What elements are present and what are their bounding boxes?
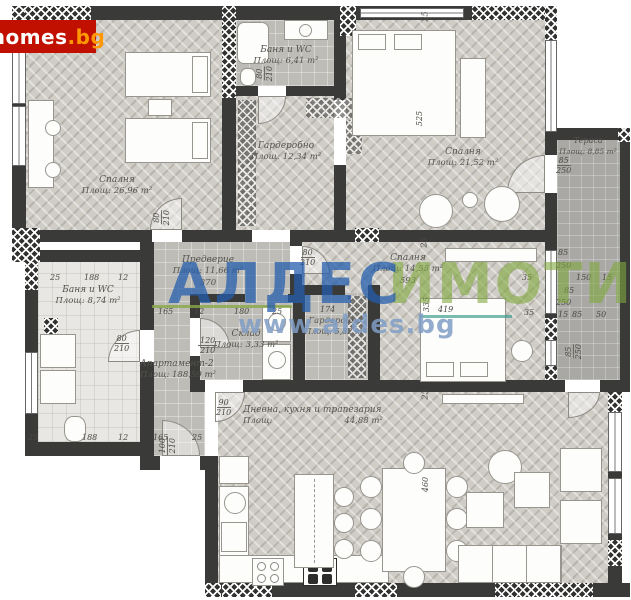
column-hatch bbox=[205, 583, 221, 597]
room-name: Баня и WC bbox=[248, 44, 324, 56]
column-hatch bbox=[222, 6, 236, 98]
door-opening bbox=[565, 380, 600, 392]
sofa bbox=[458, 545, 562, 583]
window bbox=[12, 48, 26, 104]
door-opening bbox=[205, 380, 243, 392]
wall bbox=[140, 242, 154, 330]
vanity-cabinet bbox=[40, 334, 76, 368]
dishwasher bbox=[221, 522, 247, 552]
dim-label: 25 bbox=[28, 433, 38, 442]
wall bbox=[25, 442, 150, 456]
logo-suffix: .bg bbox=[68, 25, 106, 49]
room-area: Площ: 11,66 m² bbox=[168, 266, 248, 277]
column-hatch bbox=[545, 366, 557, 380]
pillow bbox=[358, 34, 386, 50]
dim-label: 165 bbox=[153, 433, 168, 442]
door-dim: 80210 bbox=[255, 66, 274, 81]
vanity-cabinet bbox=[40, 370, 76, 404]
dim-label: 250 bbox=[556, 261, 571, 270]
door-dim: 120210 bbox=[198, 336, 217, 355]
bedroom1-label: Спалня Площ: 26,96 m² bbox=[62, 174, 172, 198]
fridge bbox=[219, 456, 249, 484]
door-dim: 85250 bbox=[556, 156, 571, 175]
dim-label: 525 bbox=[415, 111, 424, 126]
room-dim: 370 bbox=[168, 278, 248, 289]
column-hatch bbox=[608, 392, 622, 412]
door-dim: 80210 bbox=[300, 248, 315, 267]
terrace-label: Тераса Площ: 8,85 m² bbox=[558, 136, 618, 157]
wall bbox=[293, 285, 345, 295]
dim-label: 12 bbox=[118, 273, 128, 282]
pillow bbox=[426, 362, 454, 377]
room-name: Тераса bbox=[558, 136, 618, 147]
dim-label: 25 bbox=[421, 11, 430, 21]
column-hatch bbox=[608, 540, 622, 566]
pillow bbox=[460, 362, 488, 377]
logo-text: homes bbox=[0, 25, 68, 49]
room-name: Гардеробно bbox=[243, 140, 329, 152]
dim-label: 50 bbox=[596, 310, 606, 319]
window bbox=[25, 352, 38, 414]
dining-chair bbox=[360, 508, 382, 530]
armchair bbox=[560, 500, 602, 544]
wall bbox=[140, 456, 160, 470]
dim-label: 25 bbox=[50, 273, 60, 282]
dim-label: 188 bbox=[84, 273, 99, 282]
bedroom2-label: Спалня Площ: 21,52 m² bbox=[415, 146, 511, 170]
washbasin bbox=[299, 24, 312, 37]
room-name: Спалня bbox=[415, 146, 511, 158]
dining-table bbox=[382, 468, 446, 572]
wall bbox=[600, 380, 630, 392]
bar-stool bbox=[334, 487, 354, 507]
dining-chair bbox=[446, 508, 468, 530]
bedroom3-label: Спалня Площ: 14,55 m² 593 bbox=[360, 252, 456, 287]
column-hatch bbox=[472, 6, 554, 20]
dim-label: 419 bbox=[438, 305, 453, 314]
room-area: Площ: 12,34 m² bbox=[243, 152, 329, 163]
wall bbox=[205, 456, 218, 597]
ottoman bbox=[466, 492, 504, 528]
column-hatch bbox=[25, 6, 91, 20]
dim-label: 85 bbox=[558, 248, 568, 257]
room-area-label: Площ: bbox=[243, 416, 272, 426]
green-line bbox=[152, 305, 292, 308]
room-name: Спалня bbox=[360, 252, 456, 264]
window bbox=[545, 340, 557, 366]
armchair bbox=[419, 194, 453, 228]
dim-label: 15 bbox=[558, 310, 568, 319]
room-area: Площ: 8,74 m² bbox=[48, 296, 128, 307]
room-name: Дневна, кухня и трапезария bbox=[243, 404, 443, 416]
coffee-table bbox=[514, 472, 550, 508]
wall bbox=[286, 86, 334, 96]
stove bbox=[252, 558, 284, 586]
door-dim: 80210 bbox=[114, 334, 129, 353]
stool bbox=[45, 162, 61, 178]
kitchen-sink bbox=[224, 492, 246, 514]
room-name: Баня и WC bbox=[48, 284, 128, 296]
dim-label: 12 bbox=[194, 307, 204, 316]
window bbox=[545, 40, 557, 132]
door-dim: 85250 bbox=[564, 344, 583, 359]
column-hatch bbox=[618, 128, 630, 142]
pillow bbox=[394, 34, 422, 50]
wall bbox=[190, 380, 205, 392]
room-name: Гардеробно bbox=[296, 316, 374, 327]
room-area: Площ: 3,33 m² bbox=[206, 340, 286, 351]
wall bbox=[182, 230, 252, 242]
column-hatch bbox=[545, 318, 557, 342]
column-hatch bbox=[12, 228, 40, 262]
teal-line bbox=[420, 315, 512, 318]
apartment-name: Апартамент-2 bbox=[140, 358, 220, 370]
wardrobe1-label: Гардеробно Площ: 12,34 m² bbox=[243, 140, 329, 164]
armchair bbox=[484, 186, 520, 222]
room-name: Предверие bbox=[168, 254, 248, 266]
side-table bbox=[462, 192, 478, 208]
stool bbox=[45, 120, 61, 136]
bath1-label: Баня и WC Площ: 6,41 m² bbox=[248, 44, 324, 68]
column-hatch bbox=[355, 228, 379, 242]
room-dim: 593 bbox=[360, 276, 456, 287]
door-opening bbox=[258, 86, 286, 96]
column-hatch bbox=[25, 262, 38, 290]
dining-chair bbox=[403, 452, 425, 474]
dim-label: 12 bbox=[118, 433, 128, 442]
wardrobe-cabinet bbox=[460, 58, 486, 138]
wall bbox=[620, 128, 630, 392]
tv-console bbox=[442, 394, 524, 404]
dim-label: 335 bbox=[422, 297, 431, 312]
dim-label: 188 bbox=[82, 433, 97, 442]
room-area: Площ: 21,52 m² bbox=[415, 158, 511, 169]
door-opening bbox=[252, 230, 290, 242]
kitchen-island bbox=[294, 474, 334, 568]
bar-stool bbox=[334, 513, 354, 533]
dim-label: 25 bbox=[421, 389, 430, 399]
dim-label: 25 bbox=[272, 307, 282, 316]
dim-label: 180 bbox=[234, 307, 249, 316]
door-opening bbox=[152, 230, 182, 242]
window bbox=[608, 478, 622, 534]
pillow bbox=[192, 56, 208, 93]
dining-chair bbox=[446, 476, 468, 498]
dim-label: 460 bbox=[421, 477, 430, 492]
room-name: Склад bbox=[206, 328, 286, 340]
room-area: Площ: 26,96 m² bbox=[62, 186, 172, 197]
column-hatch bbox=[495, 583, 593, 597]
toilet bbox=[240, 68, 256, 86]
pouf bbox=[511, 340, 533, 362]
wall bbox=[243, 380, 565, 392]
dim-label: 174 bbox=[320, 305, 335, 314]
door-dim: 80210 bbox=[152, 210, 171, 225]
floor-plan: Спалня Площ: 26,96 m² Баня и WC Площ: 6,… bbox=[0, 0, 631, 600]
apartment-label: Апартамент-2 Площ: 188,59 m² bbox=[140, 358, 220, 382]
dim-label: 35 bbox=[524, 308, 534, 317]
dining-chair bbox=[360, 476, 382, 498]
dim-label: 85 bbox=[564, 286, 574, 295]
dryer-door bbox=[268, 351, 286, 369]
dim-label: 250 bbox=[556, 298, 571, 307]
room-area: Площ: 5,82 m² bbox=[296, 327, 374, 338]
bar-stool bbox=[334, 539, 354, 559]
window bbox=[360, 8, 464, 18]
door-dim: 90210 bbox=[216, 398, 231, 417]
dim-label: 35 bbox=[522, 273, 532, 282]
wall bbox=[25, 250, 140, 262]
dim-label: 150 bbox=[576, 273, 591, 282]
dim-label: 165 bbox=[158, 307, 173, 316]
nightstand bbox=[148, 99, 172, 116]
room-area: Площ: 14,55 m² bbox=[360, 264, 456, 275]
bath2-label: Баня и WC Площ: 8,74 m² bbox=[48, 284, 128, 308]
column-hatch bbox=[545, 6, 557, 40]
door-opening bbox=[160, 456, 200, 470]
dining-chair bbox=[360, 540, 382, 562]
pillow bbox=[192, 122, 208, 159]
window bbox=[608, 412, 622, 472]
dining-chair bbox=[403, 566, 425, 588]
dim-label: 25 bbox=[192, 433, 202, 442]
room-name: Спалня bbox=[62, 174, 172, 186]
homes-bg-logo[interactable]: homes.bg bbox=[0, 20, 96, 53]
dim-label: 85 bbox=[572, 310, 582, 319]
armchair bbox=[560, 448, 602, 492]
dresser bbox=[445, 248, 537, 262]
apartment-area: Площ: 188,59 m² bbox=[140, 370, 220, 381]
room-area: 44,88 m² bbox=[344, 416, 383, 426]
column-hatch bbox=[355, 583, 397, 597]
wall bbox=[290, 230, 545, 242]
hall-label: Предверие Площ: 11,66 m² 370 bbox=[168, 254, 248, 289]
dim-label: 25 bbox=[420, 237, 429, 247]
dim-label: 15 bbox=[602, 273, 612, 282]
wall bbox=[190, 294, 245, 302]
living-label: Дневна, кухня и трапезария Площ:44,88 m² bbox=[243, 404, 443, 428]
storage-label: Склад Площ: 3,33 m² bbox=[206, 328, 286, 352]
wardrobe2-label: Гардеробно Площ: 5,82 m² bbox=[296, 316, 374, 338]
window bbox=[12, 106, 26, 166]
